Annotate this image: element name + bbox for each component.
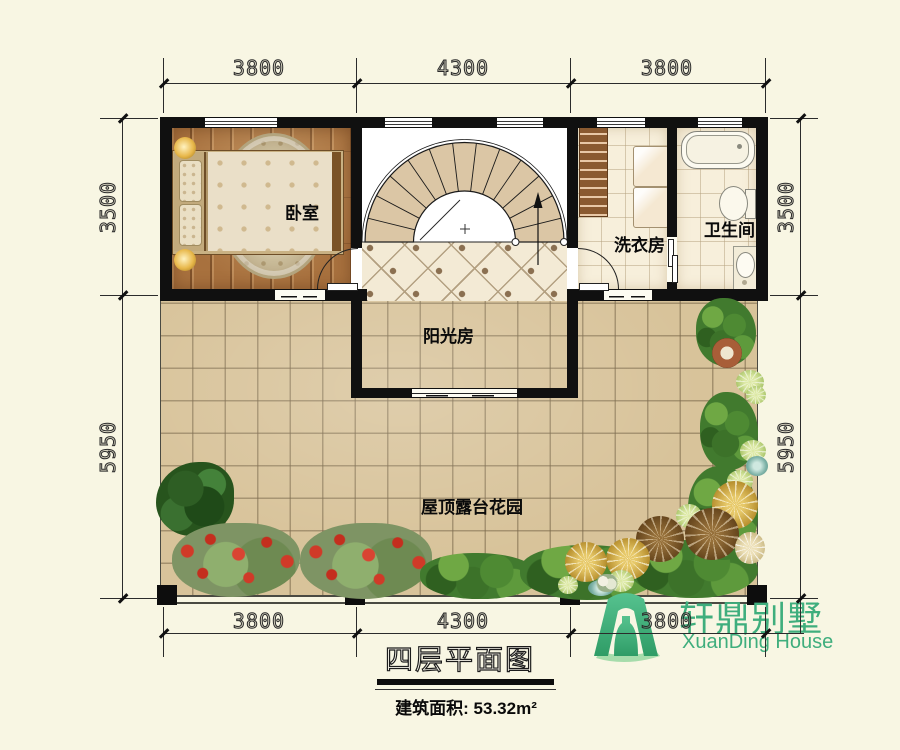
dimension-line-right [800, 118, 801, 633]
bed-pillow [179, 204, 202, 246]
extension-line [100, 118, 158, 119]
spiral-staircase [362, 128, 567, 268]
bed-pillow [179, 160, 202, 202]
room-label-bedroom: 卧室 [285, 199, 319, 224]
room-label-bathroom: 卫生间 [704, 216, 755, 241]
dim-label-top-left: 3800 [213, 56, 305, 80]
plant-palm-brown [685, 508, 739, 560]
wall-right [756, 117, 768, 301]
wall-sunroom-right [567, 301, 578, 398]
dim-label-right-upper: 3500 [774, 161, 798, 253]
plan-title: 四层平面图 [376, 638, 544, 678]
wall-sunroom-left [351, 301, 362, 398]
window-sunroom-south [412, 389, 517, 397]
wall-stair-laundry [567, 117, 578, 248]
wall-left [160, 117, 172, 301]
extension-line [770, 598, 818, 599]
bathtub-drain [737, 144, 742, 149]
bedside-lamp [174, 249, 196, 271]
building-area: 建筑面积: 53.32m² [366, 694, 566, 719]
extension-line [770, 118, 818, 119]
dim-label-left-lower: 5950 [96, 401, 120, 493]
sliding-door-panel [672, 255, 678, 283]
extension-line [100, 295, 158, 296]
building-area-value: 53.32m² [474, 699, 537, 718]
door-leaf-bedroom [327, 283, 358, 291]
wall-bedroom-stair [351, 117, 362, 248]
room-label-terrace: 屋顶露台花园 [421, 493, 523, 518]
plant-wreath [712, 338, 742, 368]
window-laundry-south [604, 290, 652, 300]
washing-machine [633, 146, 669, 187]
dim-label-top-right: 3800 [621, 56, 713, 80]
window-bedroom [205, 118, 277, 127]
sink-faucet [742, 280, 747, 285]
dimension-line-bottom [163, 633, 804, 634]
floor-plan-canvas: 卧室 阳光房 洗衣房 卫生间 屋顶露台花园 轩鼎别墅 XuanDing Hous… [0, 0, 900, 750]
window-laundry [597, 118, 645, 127]
bathtub-inner [686, 135, 749, 164]
dim-label-right-lower: 5950 [774, 401, 798, 493]
wall-laundry-bathroom [667, 117, 677, 237]
window-bathroom [698, 118, 742, 127]
title-underline-rule [375, 689, 556, 690]
room-label-laundry: 洗衣房 [614, 231, 665, 256]
bedside-lamp [174, 137, 196, 159]
window-stair-right [497, 118, 543, 127]
room-label-sunroom: 阳光房 [423, 322, 474, 347]
bed-footboard [332, 152, 341, 251]
window-stair-left [385, 118, 432, 127]
title-underline-bar [377, 679, 554, 685]
door-opening-laundry [567, 248, 578, 289]
window-bedroom-south [275, 290, 325, 300]
washing-machine [633, 187, 669, 228]
dimension-line-left [122, 118, 123, 598]
dim-label-top-center: 4300 [417, 56, 509, 80]
plant-cabbage [746, 386, 766, 404]
dim-label-bottom-left: 3800 [213, 609, 305, 633]
extension-line [770, 295, 818, 296]
logo-name-en: XuanDing House [682, 631, 833, 654]
building-area-label: 建筑面积: [395, 699, 469, 718]
dim-label-left-upper: 3500 [96, 161, 120, 253]
plant-cabbage [558, 576, 578, 594]
dim-label-bottom-center: 4300 [417, 609, 509, 633]
dimension-line-top [163, 83, 766, 84]
drying-rack [579, 127, 608, 217]
plant-palm-pale [735, 532, 765, 564]
sink [736, 252, 755, 278]
extension-line [100, 598, 158, 599]
dim-label-bottom-right: 3800 [621, 609, 713, 633]
door-leaf-laundry [579, 283, 609, 291]
terrace-column [157, 585, 177, 605]
